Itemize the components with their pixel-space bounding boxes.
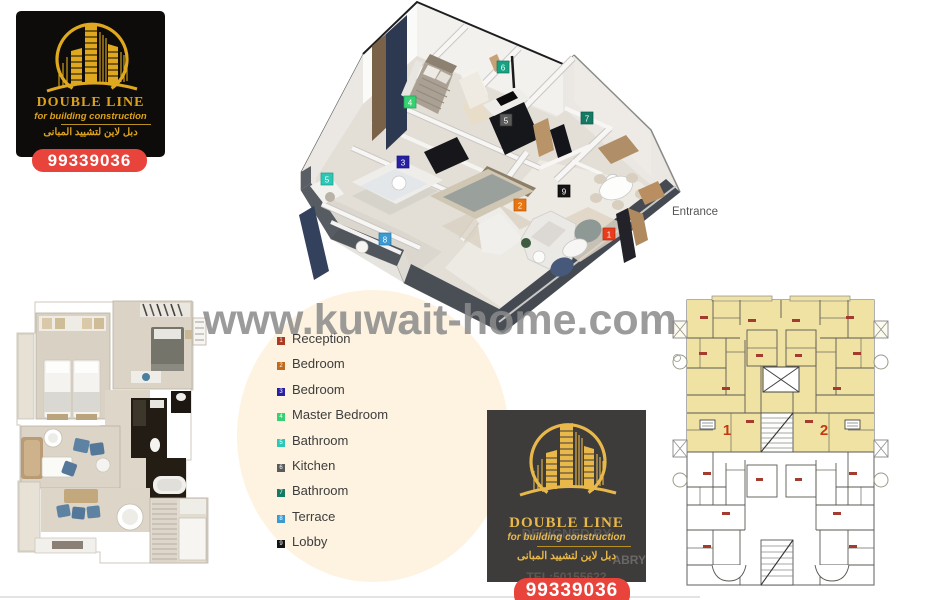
svg-text:9: 9	[562, 188, 567, 197]
svg-text:1: 1	[723, 422, 731, 439]
svg-text:4: 4	[408, 99, 413, 108]
svg-text:3: 3	[401, 159, 406, 168]
svg-text:8: 8	[383, 236, 388, 245]
svg-text:6: 6	[501, 64, 506, 73]
svg-text:5: 5	[504, 117, 509, 126]
svg-text:1: 1	[607, 231, 612, 240]
svg-text:7: 7	[585, 115, 590, 124]
svg-text:2: 2	[820, 422, 828, 439]
svg-text:2: 2	[518, 202, 523, 211]
svg-text:5: 5	[325, 176, 330, 185]
